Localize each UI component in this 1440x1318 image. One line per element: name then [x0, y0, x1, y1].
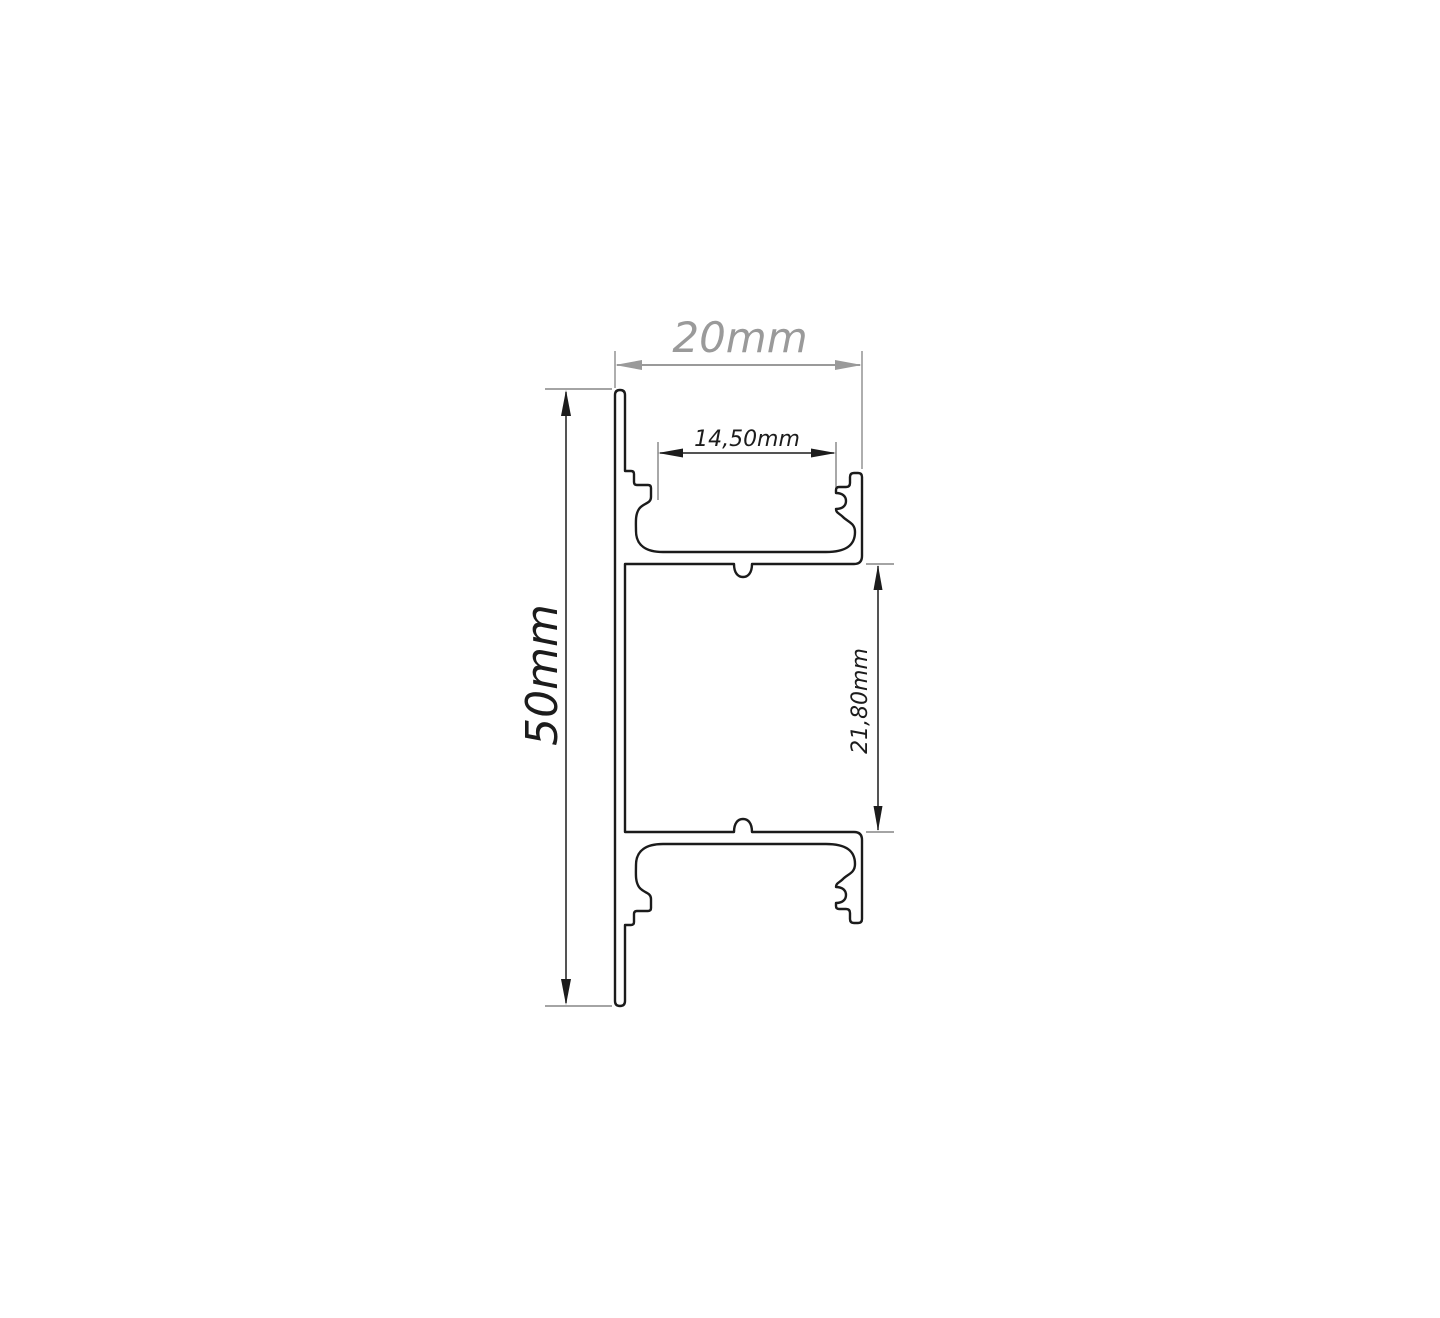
profile-section — [615, 390, 862, 1006]
dim-cavity-height: 21,80mm — [848, 564, 894, 832]
dim-slot-width: 14,50mm — [658, 427, 836, 500]
arrowhead-left-icon — [615, 360, 642, 370]
dim-width-label: 20mm — [672, 313, 807, 362]
arrowhead-right-icon — [811, 449, 836, 458]
dim-overall-height: 50mm — [517, 389, 612, 1006]
dim-cavity-height-label: 21,80mm — [848, 648, 873, 754]
arrowhead-left-icon — [658, 449, 683, 458]
dim-height-label: 50mm — [517, 604, 568, 746]
dim-slot-width-label: 14,50mm — [694, 427, 800, 452]
profile-drawing: 20mm 50mm 14,50mm 21,80mm — [0, 0, 1440, 1318]
profile-outline — [615, 390, 862, 1006]
arrowhead-down-icon — [874, 806, 883, 831]
arrowhead-right-icon — [835, 360, 862, 370]
arrowhead-down-icon — [561, 979, 571, 1005]
technical-drawing-canvas: 20mm 50mm 14,50mm 21,80mm — [0, 0, 1440, 1318]
arrowhead-up-icon — [874, 565, 883, 590]
arrowhead-up-icon — [561, 390, 571, 416]
